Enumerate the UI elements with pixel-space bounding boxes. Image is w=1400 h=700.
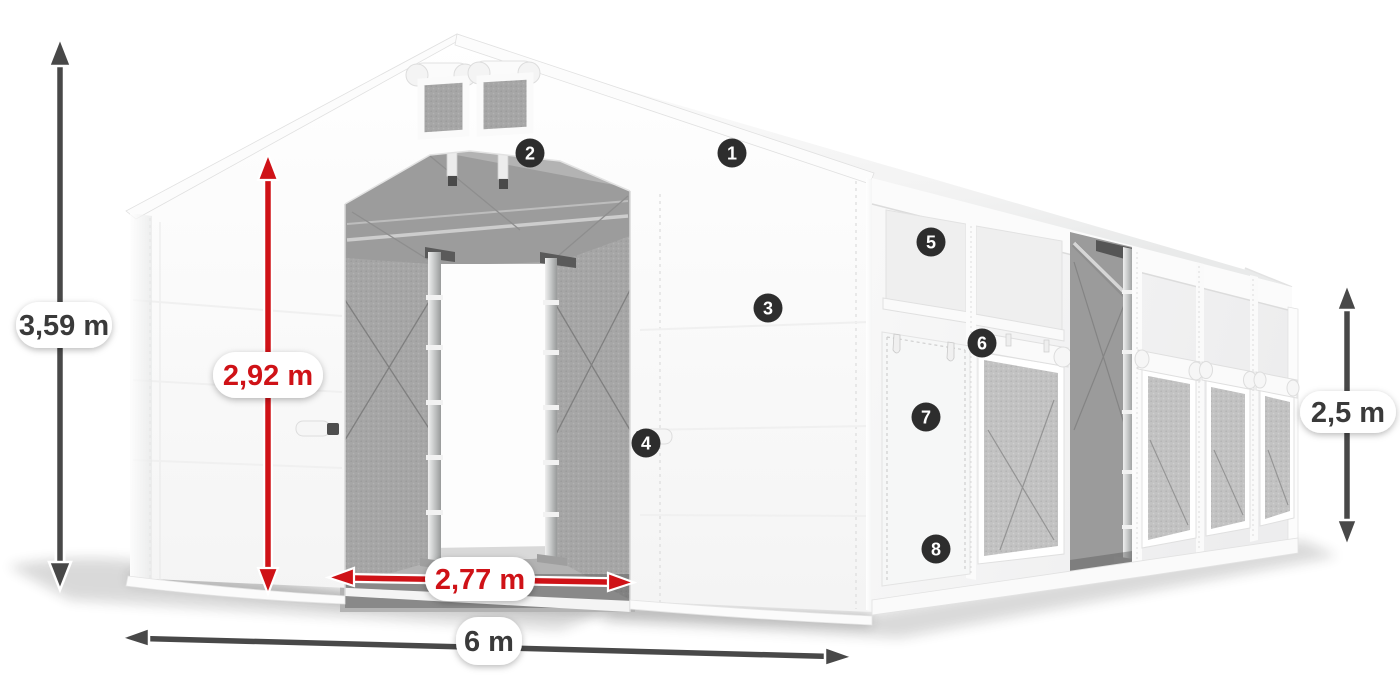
feature-marker-8: 8 xyxy=(922,535,951,564)
entrance-height-value: 2,92 m xyxy=(223,360,313,392)
entrance-height-label: 2,92 m xyxy=(213,352,323,398)
entrance-width-value: 2,77 m xyxy=(435,564,525,596)
tent-illustration: 3,59 m 2,92 m 2,77 m 6 m 2,5 m 1 2 3 4 5… xyxy=(0,0,1400,700)
marker-number: 4 xyxy=(641,434,651,454)
feature-marker-2: 2 xyxy=(516,139,545,168)
tent-interior xyxy=(340,140,635,612)
feature-marker-4: 4 xyxy=(632,429,661,458)
side-height-label: 2,5 m xyxy=(1300,391,1396,433)
feature-marker-3: 3 xyxy=(754,294,783,323)
entrance-width-label: 2,77 m xyxy=(425,557,535,601)
side-window xyxy=(972,332,1072,564)
tent-width-value: 6 m xyxy=(464,626,514,658)
marker-number: 3 xyxy=(763,299,773,319)
tent-dimension-diagram: 3,59 m 2,92 m 2,77 m 6 m 2,5 m 1 2 3 4 5… xyxy=(0,0,1400,700)
total-height-value: 3,59 m xyxy=(19,310,109,342)
side-height-value: 2,5 m xyxy=(1311,397,1385,429)
marker-number: 6 xyxy=(977,334,987,354)
tent-width-label: 6 m xyxy=(456,617,522,665)
feature-marker-7: 7 xyxy=(912,403,941,432)
side-window xyxy=(1135,350,1203,548)
feature-marker-5: 5 xyxy=(917,228,946,257)
side-window xyxy=(1200,362,1257,537)
marker-number: 2 xyxy=(525,144,535,164)
side-window xyxy=(1254,372,1299,526)
feature-marker-6: 6 xyxy=(968,329,997,358)
marker-number: 7 xyxy=(921,408,931,428)
total-height-label: 3,59 m xyxy=(16,302,112,348)
marker-number: 8 xyxy=(931,540,941,560)
feature-marker-1: 1 xyxy=(718,139,747,168)
marker-number: 1 xyxy=(727,144,737,164)
open-wall-bay xyxy=(1070,232,1140,578)
marker-number: 5 xyxy=(926,233,936,253)
